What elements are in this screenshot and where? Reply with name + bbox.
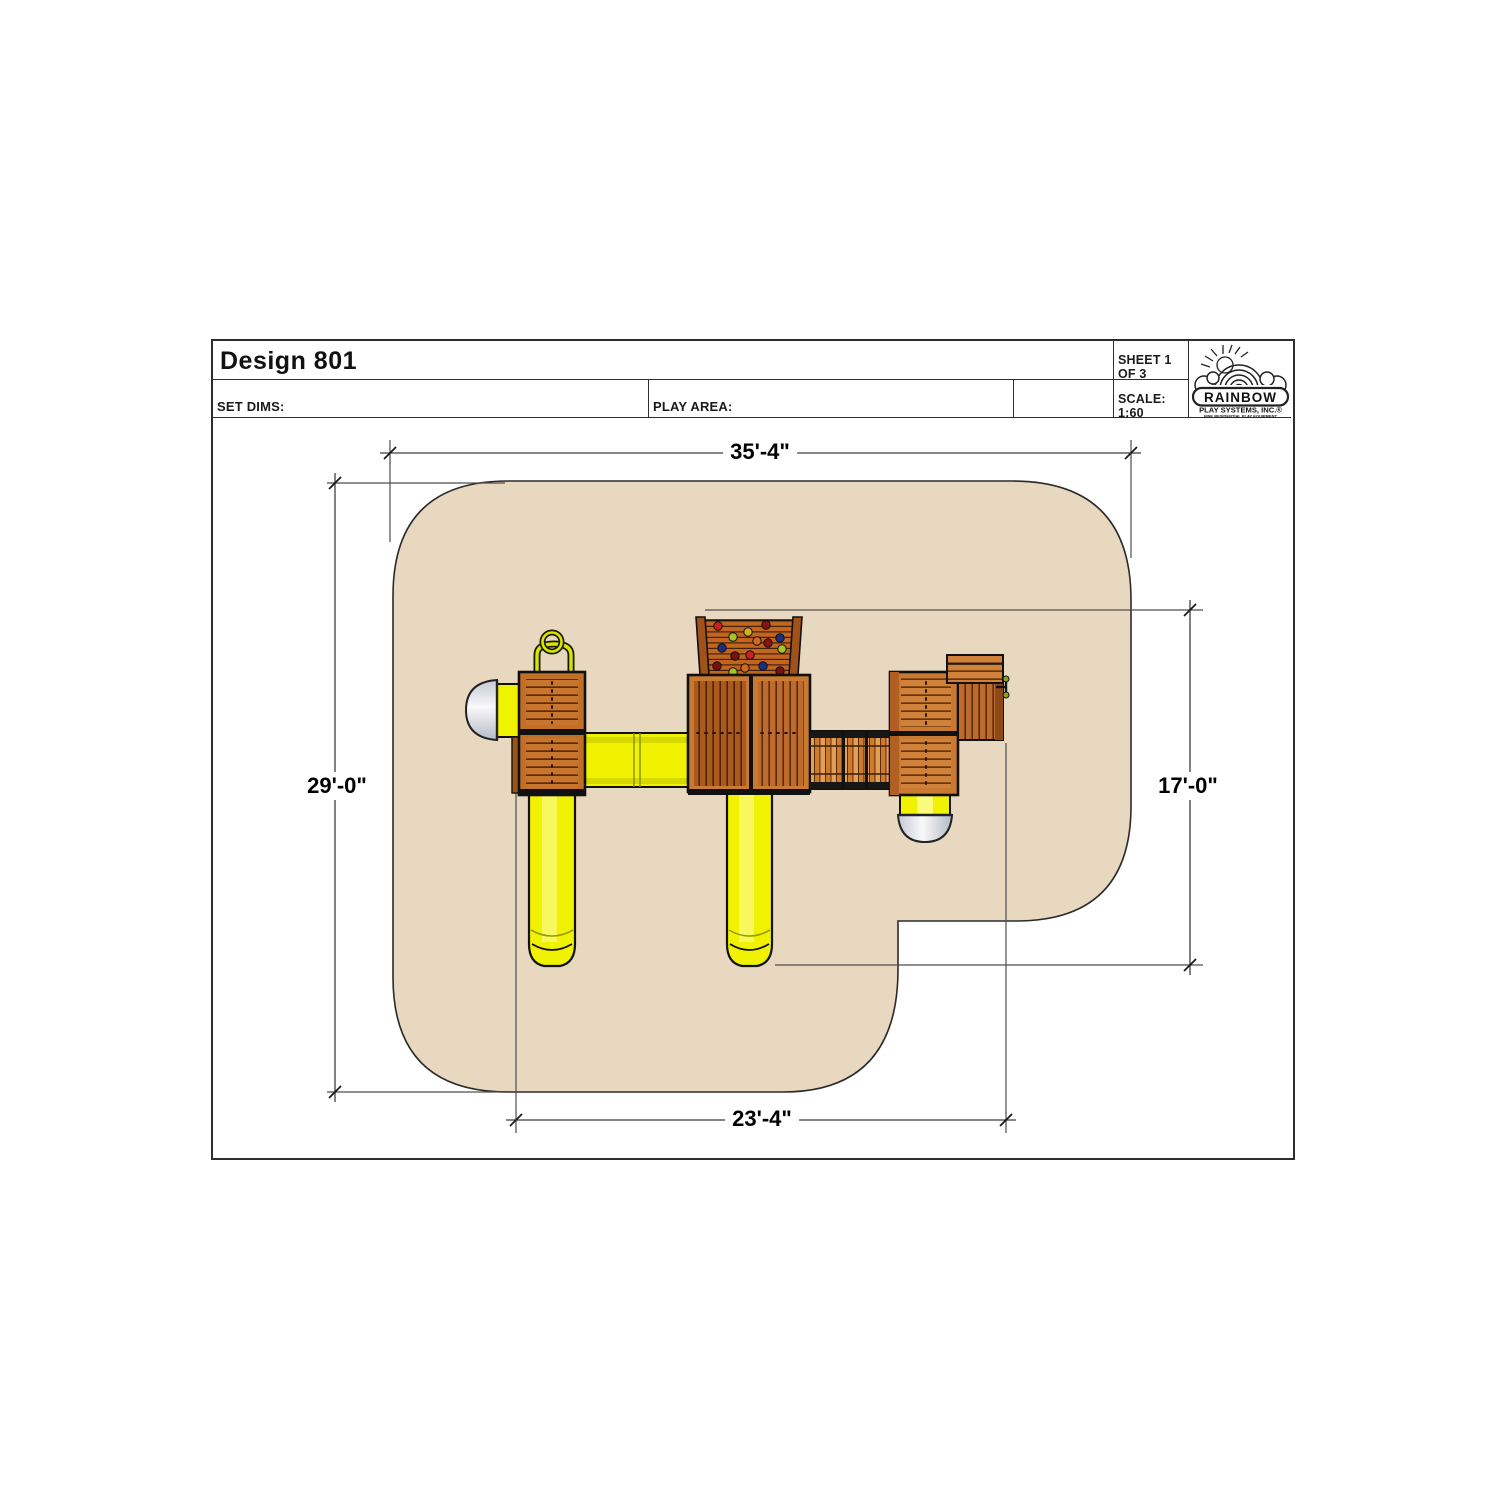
scale-value: SCALE: 1:60 xyxy=(1114,380,1188,420)
sheet-number-cell: SHEET 1 OF 3 xyxy=(1113,341,1188,380)
logo-name: RAINBOW xyxy=(1204,390,1277,405)
blank-cell xyxy=(1013,380,1113,418)
dim-top-width: 35'-4" xyxy=(723,438,797,466)
sun-icon xyxy=(1201,345,1248,373)
dim-left-height: 29'-0" xyxy=(300,772,374,800)
title-cell: Design 801 xyxy=(213,341,1113,380)
set-dims-label: SET DIMS: xyxy=(213,380,648,414)
set-dims-cell: SET DIMS: xyxy=(213,380,648,418)
play-area-cell: PLAY AREA: xyxy=(648,380,1013,418)
logo-cell: RAINBOW PLAY SYSTEMS, INC.® FINE RESIDEN… xyxy=(1188,341,1291,418)
play-area-label: PLAY AREA: xyxy=(649,380,1013,414)
logo-tagline: FINE RESIDENTIAL PLAY EQUIPMENT xyxy=(1204,414,1278,419)
plan-sheet: Design 801 SHEET 1 OF 3 SCALE: 1:60 SET … xyxy=(0,0,1500,1500)
design-title: Design 801 xyxy=(213,341,1113,376)
dim-bottom-width: 23'-4" xyxy=(725,1105,799,1133)
rainbow-logo: RAINBOW PLAY SYSTEMS, INC.® FINE RESIDEN… xyxy=(1189,341,1292,418)
dim-right-height: 17'-0" xyxy=(1151,772,1225,800)
sheet-number: SHEET 1 OF 3 xyxy=(1114,341,1188,381)
scale-cell: SCALE: 1:60 xyxy=(1113,380,1188,418)
